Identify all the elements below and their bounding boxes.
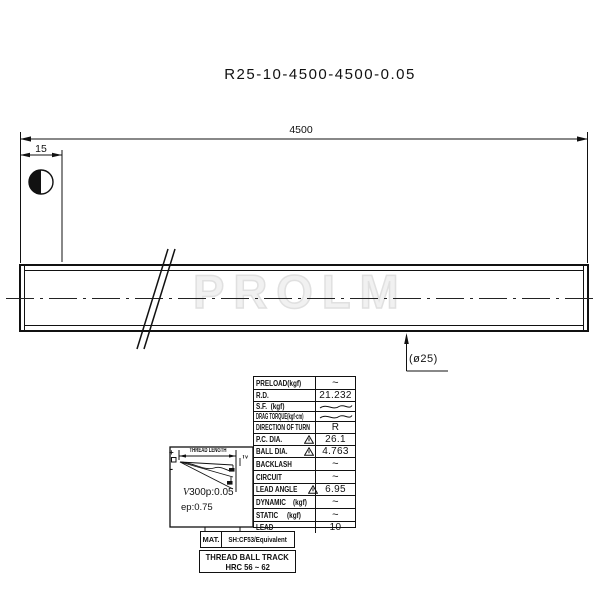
- spec-row-backlash-value: ~: [316, 458, 355, 471]
- spec-row-rd-label: R.D.: [254, 390, 316, 402]
- spec-row-circuit-label: CIRCUIT: [254, 471, 316, 484]
- spec-row-leadangle-label: LEAD ANGLE: [254, 484, 316, 496]
- spec-row-rd-value: 21.232: [316, 390, 355, 402]
- minus-tolerance-mark: -: [170, 464, 173, 474]
- spec-row-static-value: ~: [316, 509, 355, 522]
- thread-length-heading: THREAD LENGTH: [188, 448, 228, 455]
- spec-row-balldia-label: BALL DIA.: [254, 446, 316, 458]
- spec-row-dragtorque-value: [316, 412, 355, 422]
- spec-row-sf-label: S.F. (kgf): [254, 402, 316, 412]
- spec-row-static-label: STATIC (kgf): [254, 509, 316, 522]
- material-label: MAT.: [201, 532, 222, 547]
- spec-row-leadangle-value: 6.95: [316, 484, 355, 496]
- material-table: MAT. SH:CF53/Equivalent: [200, 531, 295, 548]
- flag-triangle-icon: [304, 447, 314, 456]
- spec-row-direction-label: DIRECTION OF TURN: [254, 422, 316, 434]
- spec-row-lead-value: 10: [316, 522, 355, 533]
- spec-row-preload-label: PRELOAD(kgf): [254, 377, 316, 390]
- v300p-tolerance-label: V300p:0.05: [183, 487, 234, 498]
- end-journal-dimension: [20, 150, 62, 262]
- spec-row-balldia-value: 4.763: [316, 446, 355, 458]
- spec-row-dynamic-label: DYNAMIC (kgf): [254, 496, 316, 509]
- bracket-label: Tv: [242, 455, 248, 460]
- spec-row-preload-value: ~: [316, 377, 355, 390]
- end-journal-value: 15: [26, 143, 56, 155]
- datum-circle: [29, 170, 53, 194]
- spec-row-dynamic-value: ~: [316, 496, 355, 509]
- v300p-value: 300p:0.05: [189, 487, 234, 498]
- spec-row-direction-value: R: [316, 422, 355, 434]
- drawing-title: R25-10-4500-4500-0.05: [170, 66, 470, 83]
- wavy-line: [318, 412, 354, 421]
- technical-drawing-sheet: PROLM: [0, 0, 600, 600]
- spec-row-backlash-label: BACKLASH: [254, 458, 316, 471]
- diameter-callout: (ø25): [409, 353, 438, 365]
- wavy-line: [318, 402, 354, 411]
- hardness-line2: HRC 56 ~ 62: [225, 562, 269, 572]
- spec-row-dragtorque-label: DRAG TORQUE(kgf·cm): [254, 412, 316, 422]
- spec-row-sf-value: [316, 402, 355, 412]
- overall-length-dimension: [20, 132, 588, 263]
- ep-tolerance-label: ep:0.75: [181, 502, 213, 513]
- flag-triangle-icon: [304, 435, 314, 444]
- spec-row-pcdia-label: P.C. DIA.: [254, 434, 316, 446]
- spec-row-pcdia-value: 26.1: [316, 434, 355, 446]
- spec-table: PRELOAD(kgf) ~ R.D. 21.232 S.F. (kgf) DR…: [253, 376, 356, 528]
- overall-length-value: 4500: [246, 124, 356, 136]
- hardness-table: THREAD BALL TRACK HRC 56 ~ 62: [199, 550, 296, 573]
- plus-tolerance-mark: +: [169, 448, 174, 457]
- spec-row-circuit-value: ~: [316, 471, 355, 484]
- diameter-leader: [404, 333, 448, 371]
- material-value: SH:CF53/Equivalent: [222, 532, 294, 547]
- hardness-line1: THREAD BALL TRACK: [206, 552, 289, 562]
